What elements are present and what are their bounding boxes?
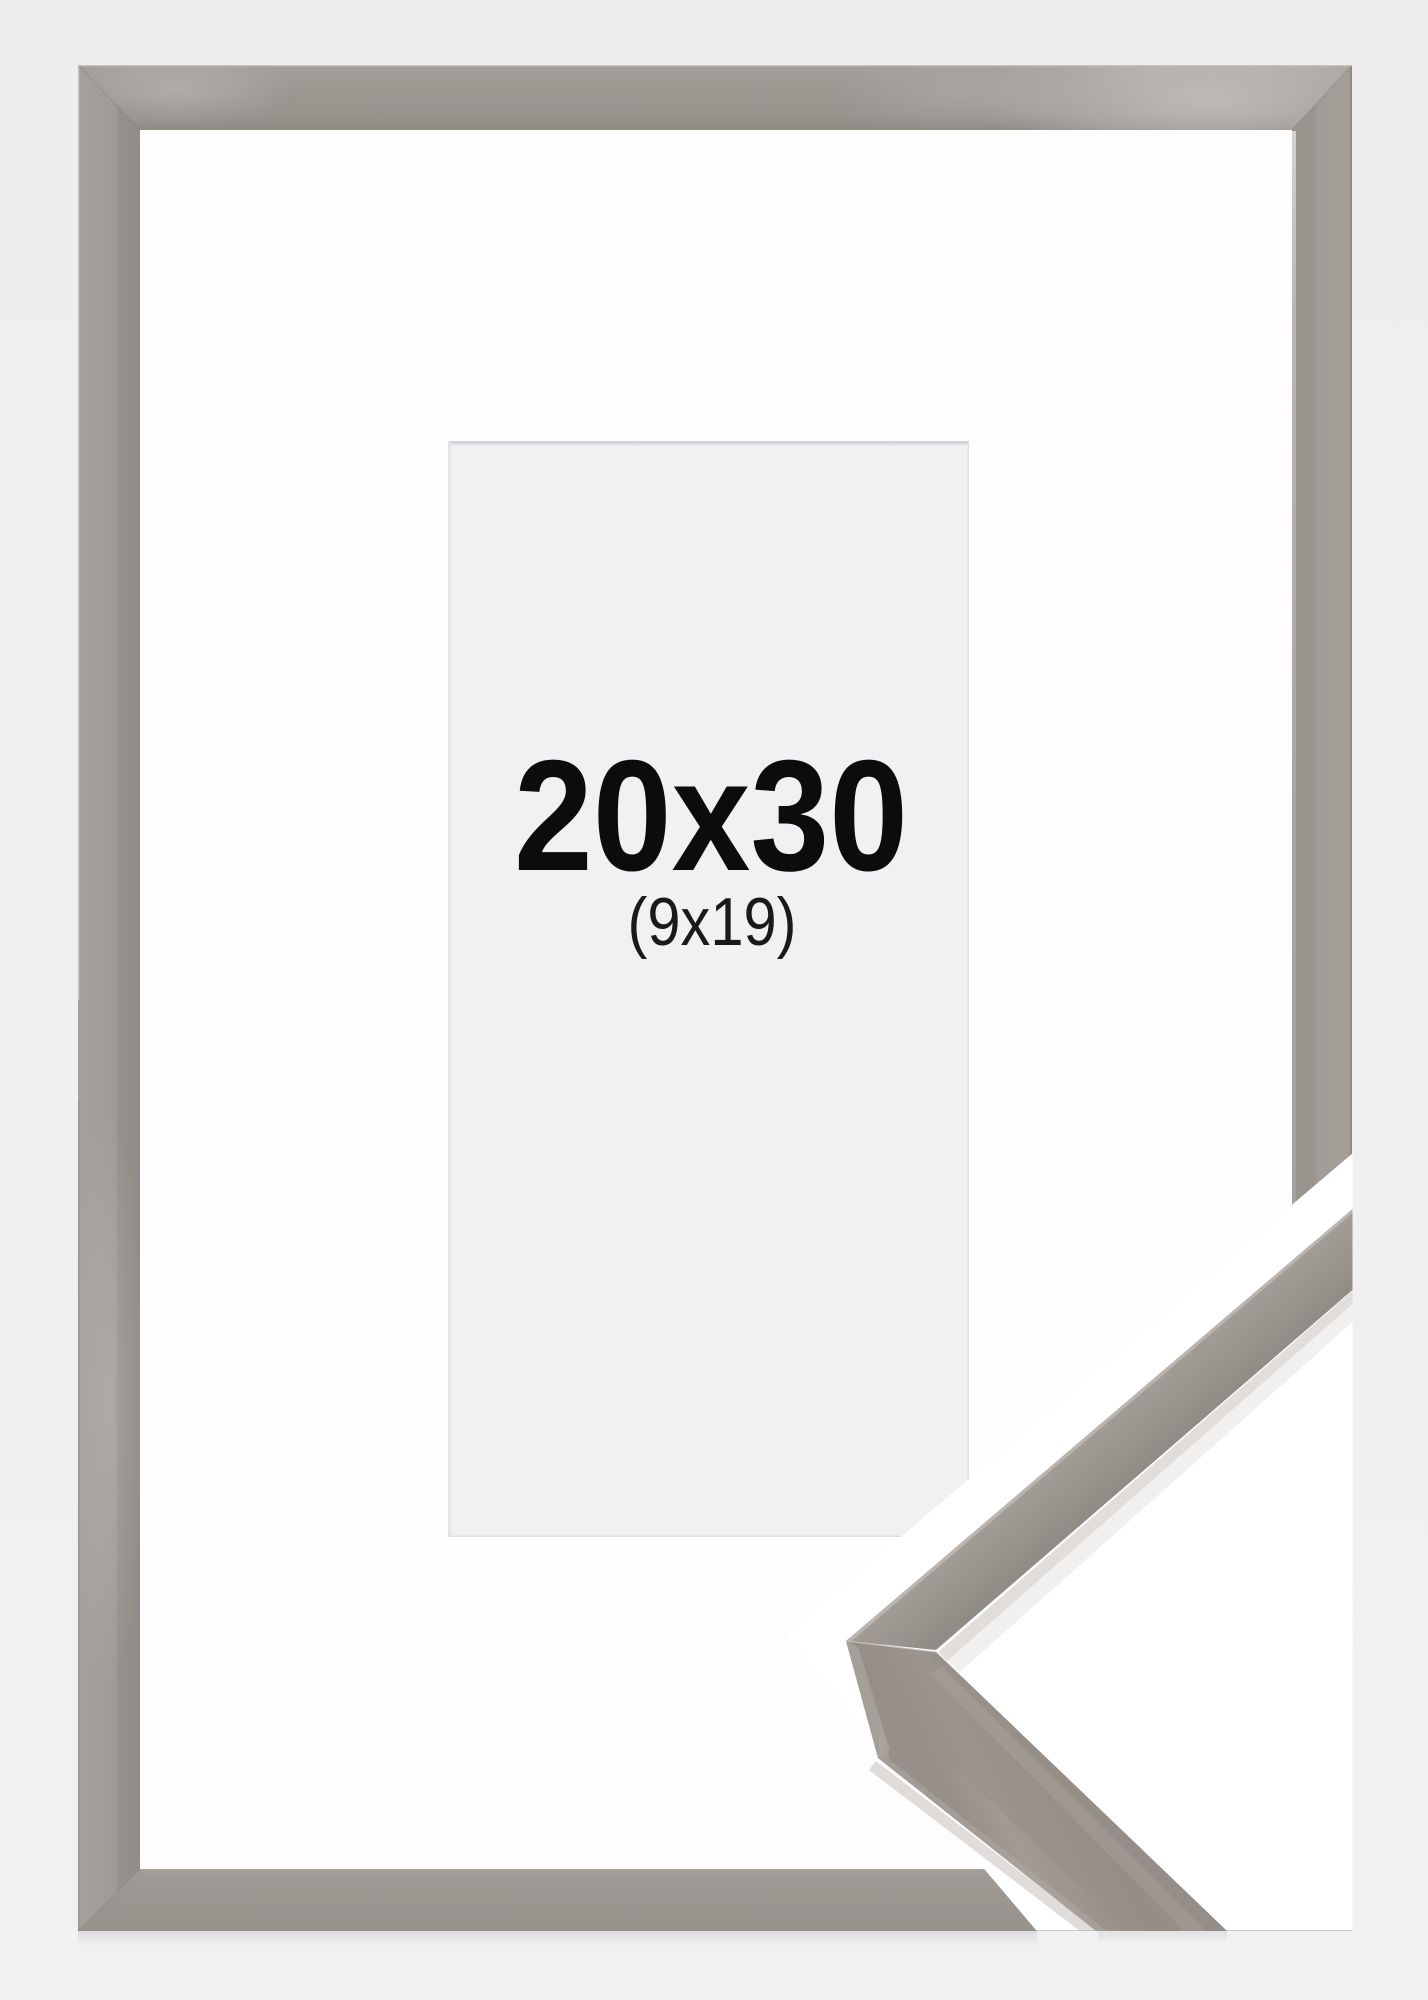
svg-text:(9x19): (9x19) <box>628 884 797 960</box>
svg-text:20x30: 20x30 <box>514 728 908 904</box>
